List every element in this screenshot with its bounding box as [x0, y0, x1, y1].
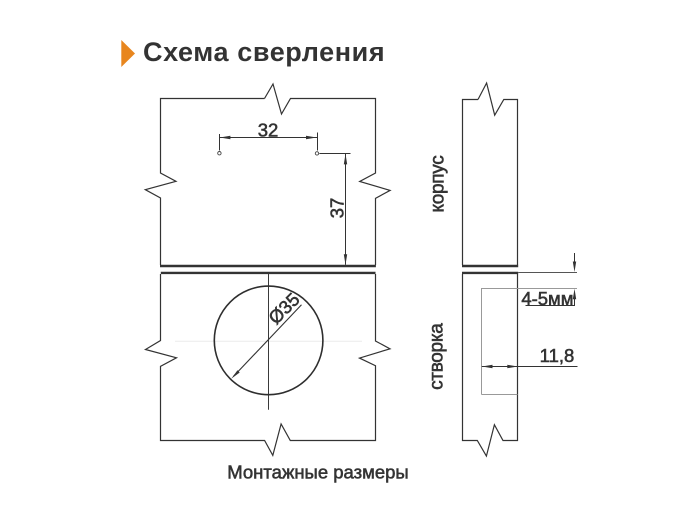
svg-text:11,8: 11,8	[540, 345, 575, 366]
svg-text:32: 32	[258, 119, 279, 140]
svg-text:Монтажные размеры: Монтажные размеры	[227, 462, 408, 483]
svg-text:37: 37	[327, 198, 348, 219]
svg-text:корпус: корпус	[428, 156, 449, 213]
svg-text:створка: створка	[427, 323, 448, 390]
svg-text:4-5мм: 4-5мм	[521, 288, 573, 309]
svg-text:Схема сверления: Схема сверления	[143, 37, 385, 67]
